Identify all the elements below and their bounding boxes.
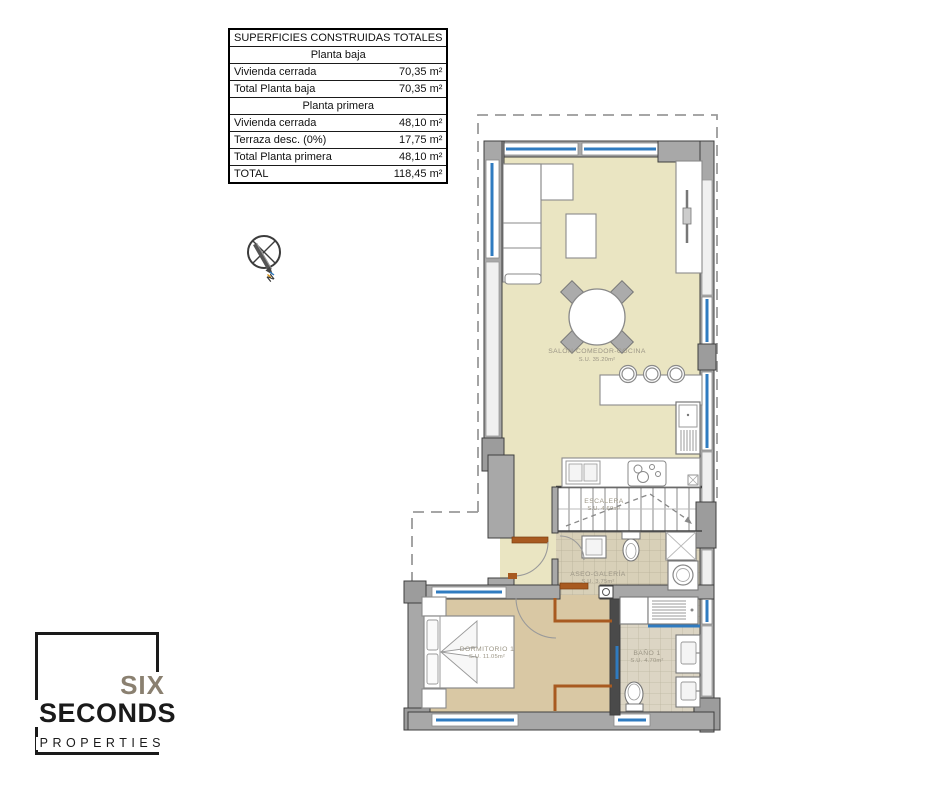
fridge — [676, 402, 700, 454]
kitchen-counter — [562, 458, 700, 487]
room-label-bano: BAÑO 1 S.U. 4.70m² — [630, 648, 663, 664]
company-logo: SIX SECONDS PROPERTIES — [35, 632, 162, 755]
coffee-table — [566, 214, 596, 258]
cooktop-hob — [628, 461, 666, 486]
bath-cabinet — [620, 597, 648, 624]
dining-table-and-chairs — [561, 281, 634, 354]
table-row: Total Planta baja 70,35 m² — [229, 81, 447, 98]
svg-text:DORMITORIO 1: DORMITORIO 1 — [460, 646, 515, 653]
row-label: TOTAL — [229, 166, 371, 184]
svg-text:ESCALERA: ESCALERA — [584, 498, 624, 505]
svg-text:ASEO-GALERÍA: ASEO-GALERÍA — [570, 569, 625, 578]
row-value: 70,35 m² — [371, 81, 448, 98]
svg-text:BAÑO 1: BAÑO 1 — [633, 648, 660, 657]
table-section-planta-baja: Planta baja — [229, 47, 447, 64]
nightstand — [422, 597, 446, 616]
svg-text:S.U. 4.60m²: S.U. 4.60m² — [587, 506, 620, 512]
bar-stools — [620, 366, 685, 383]
table-row: Vivienda cerrada 70,35 m² — [229, 64, 447, 81]
floor-plan: SALÓN-COMEDOR-COCINA S.U. 35.20m² ESCALE… — [400, 105, 730, 745]
table-title: SUPERFICIES CONSTRUIDAS TOTALES — [229, 29, 447, 47]
row-label: Vivienda cerrada — [229, 115, 371, 132]
compass-north-label: N — [265, 272, 276, 284]
svg-text:SALÓN-COMEDOR-COCINA: SALÓN-COMEDOR-COCINA — [548, 346, 646, 355]
row-label: Total Planta baja — [229, 81, 371, 98]
staircase — [558, 487, 702, 532]
bath-toilet — [625, 682, 643, 711]
north-compass-icon: N — [240, 228, 288, 286]
washing-machine — [668, 561, 698, 590]
row-value: 70,35 m² — [371, 64, 448, 81]
utility-shower — [666, 532, 696, 560]
utility-toilet — [622, 532, 640, 561]
kitchen-sink — [566, 461, 600, 484]
logo-word-six: SIX — [35, 672, 165, 698]
svg-text:S.U. 3.75m²: S.U. 3.75m² — [581, 579, 614, 585]
svg-text:S.U. 4.70m²: S.U. 4.70m² — [630, 658, 663, 664]
row-label: Terraza desc. (0%) — [229, 132, 371, 149]
row-label: Vivienda cerrada — [229, 64, 371, 81]
nightstand — [422, 689, 446, 708]
row-label: Total Planta primera — [229, 149, 371, 166]
logo-word-properties: PROPERTIES — [35, 737, 165, 750]
svg-text:S.U. 35.20m²: S.U. 35.20m² — [579, 357, 616, 363]
logo-word-seconds: SECONDS — [35, 700, 165, 727]
utility-sink — [582, 536, 606, 558]
shower-tray — [648, 597, 698, 624]
tv-unit — [676, 161, 702, 273]
svg-text:S.U. 11.05m²: S.U. 11.05m² — [469, 654, 505, 660]
bath-vanity — [676, 635, 701, 707]
